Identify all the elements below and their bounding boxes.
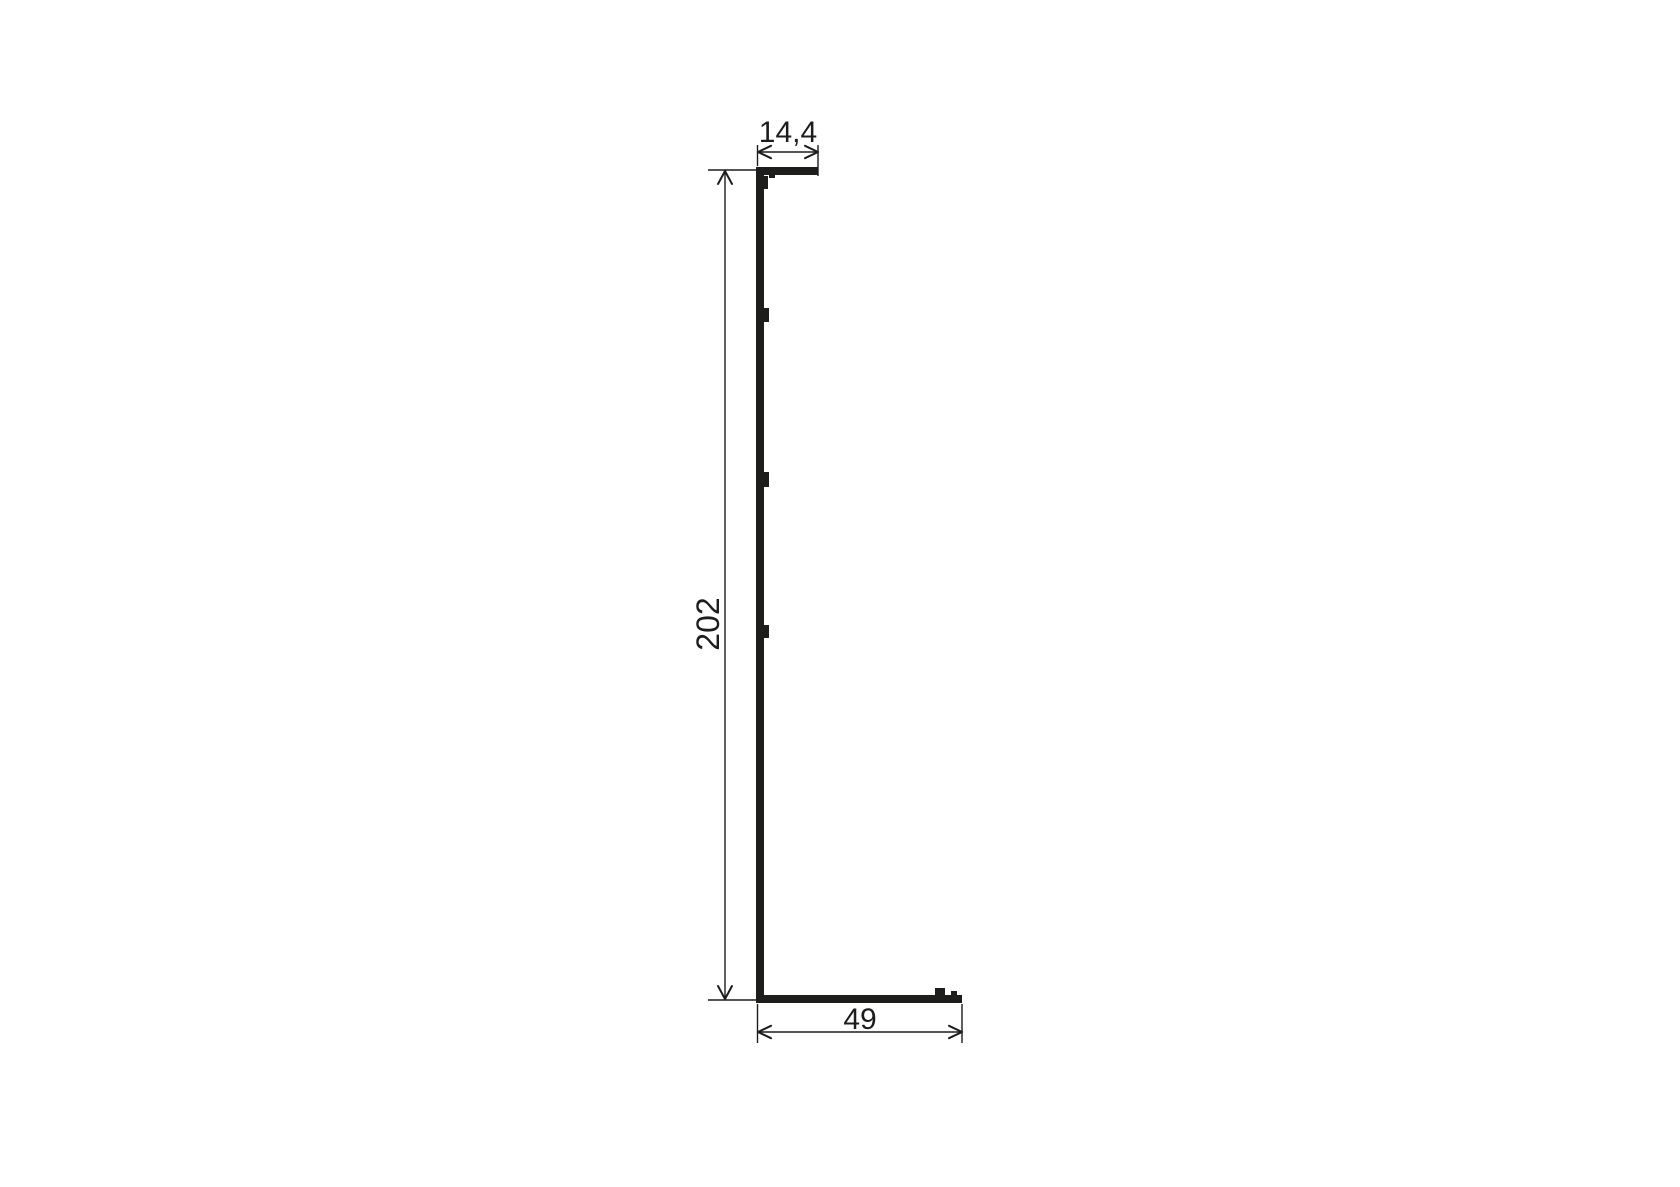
profile-stem-nub-2 [763, 472, 769, 487]
profile-stem-nub-1 [763, 308, 769, 322]
profile-shape [756, 167, 962, 1003]
profile-stem-nub-3 [763, 625, 769, 638]
profile-bottom-bump [935, 988, 945, 996]
profile-stem [756, 167, 764, 1002]
drawing-canvas: 202 14,4 49 [0, 0, 1680, 1187]
top-width-dimension-label: 14,4 [759, 116, 817, 149]
height-dimension-label: 202 [690, 597, 726, 650]
profile-bottom-flange [756, 995, 962, 1003]
profile-top-flange [756, 167, 818, 175]
bottom-width-dimension-label: 49 [843, 1003, 876, 1036]
dimension-height: 202 [690, 170, 756, 1000]
profile-top-tick [769, 174, 775, 178]
profile-top-nub [763, 176, 768, 189]
dimension-bottom-width: 49 [758, 1003, 963, 1043]
profile-bottom-tick [951, 991, 957, 995]
profile-drawing: 202 14,4 49 [0, 0, 1680, 1187]
